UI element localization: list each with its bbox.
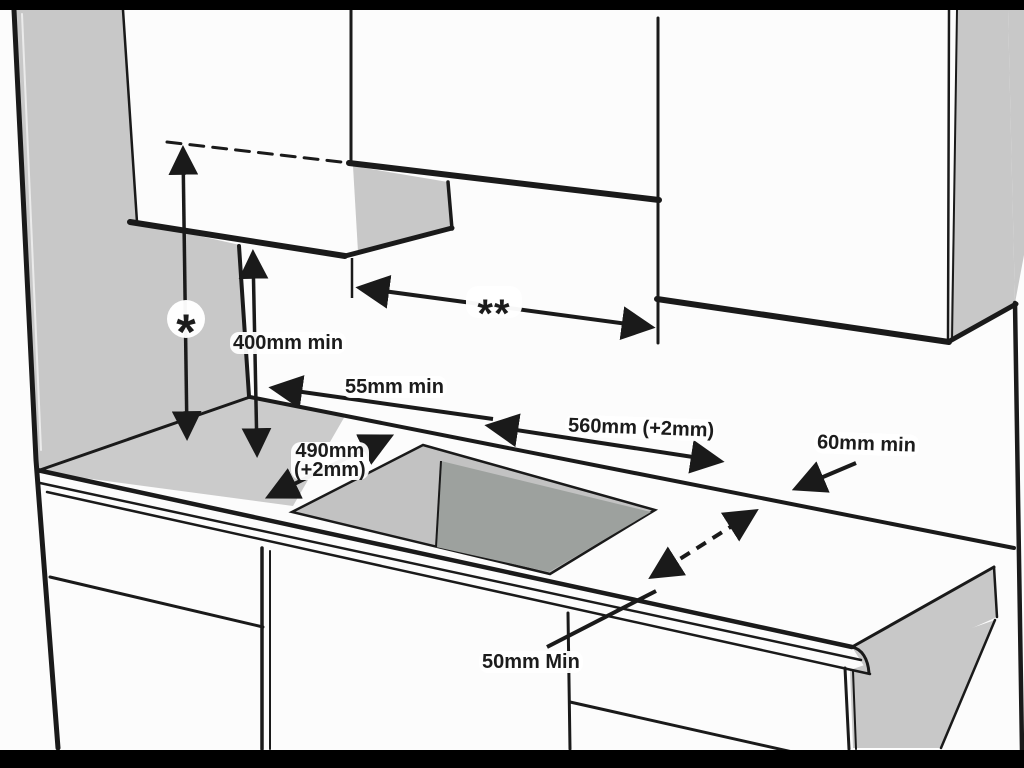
top-border-bar [0,0,1024,10]
label-490mm: 490mm (+2mm) [291,442,369,480]
asterisk-marker: * [167,300,205,338]
label-50mm-min: 50mm Min [479,651,583,673]
double-asterisk-marker: ** [466,286,522,318]
label-60mm-min: 60mm min [814,431,920,457]
label-400mm-min: 400mm min [230,332,346,354]
label-55mm-min: 55mm min [342,376,447,398]
double-asterisk-glyph: ** [477,298,510,330]
asterisk-glyph: * [176,313,195,351]
bottom-border-bar [0,750,1024,768]
diagram-page: * ** 400mm min 55mm min 560mm (+2mm) 490… [0,0,1024,768]
right-cabinet-front-right-edge [948,10,949,341]
right-cabinet-side-shade [950,10,1015,342]
label-490mm-line2: (+2mm) [294,459,366,481]
